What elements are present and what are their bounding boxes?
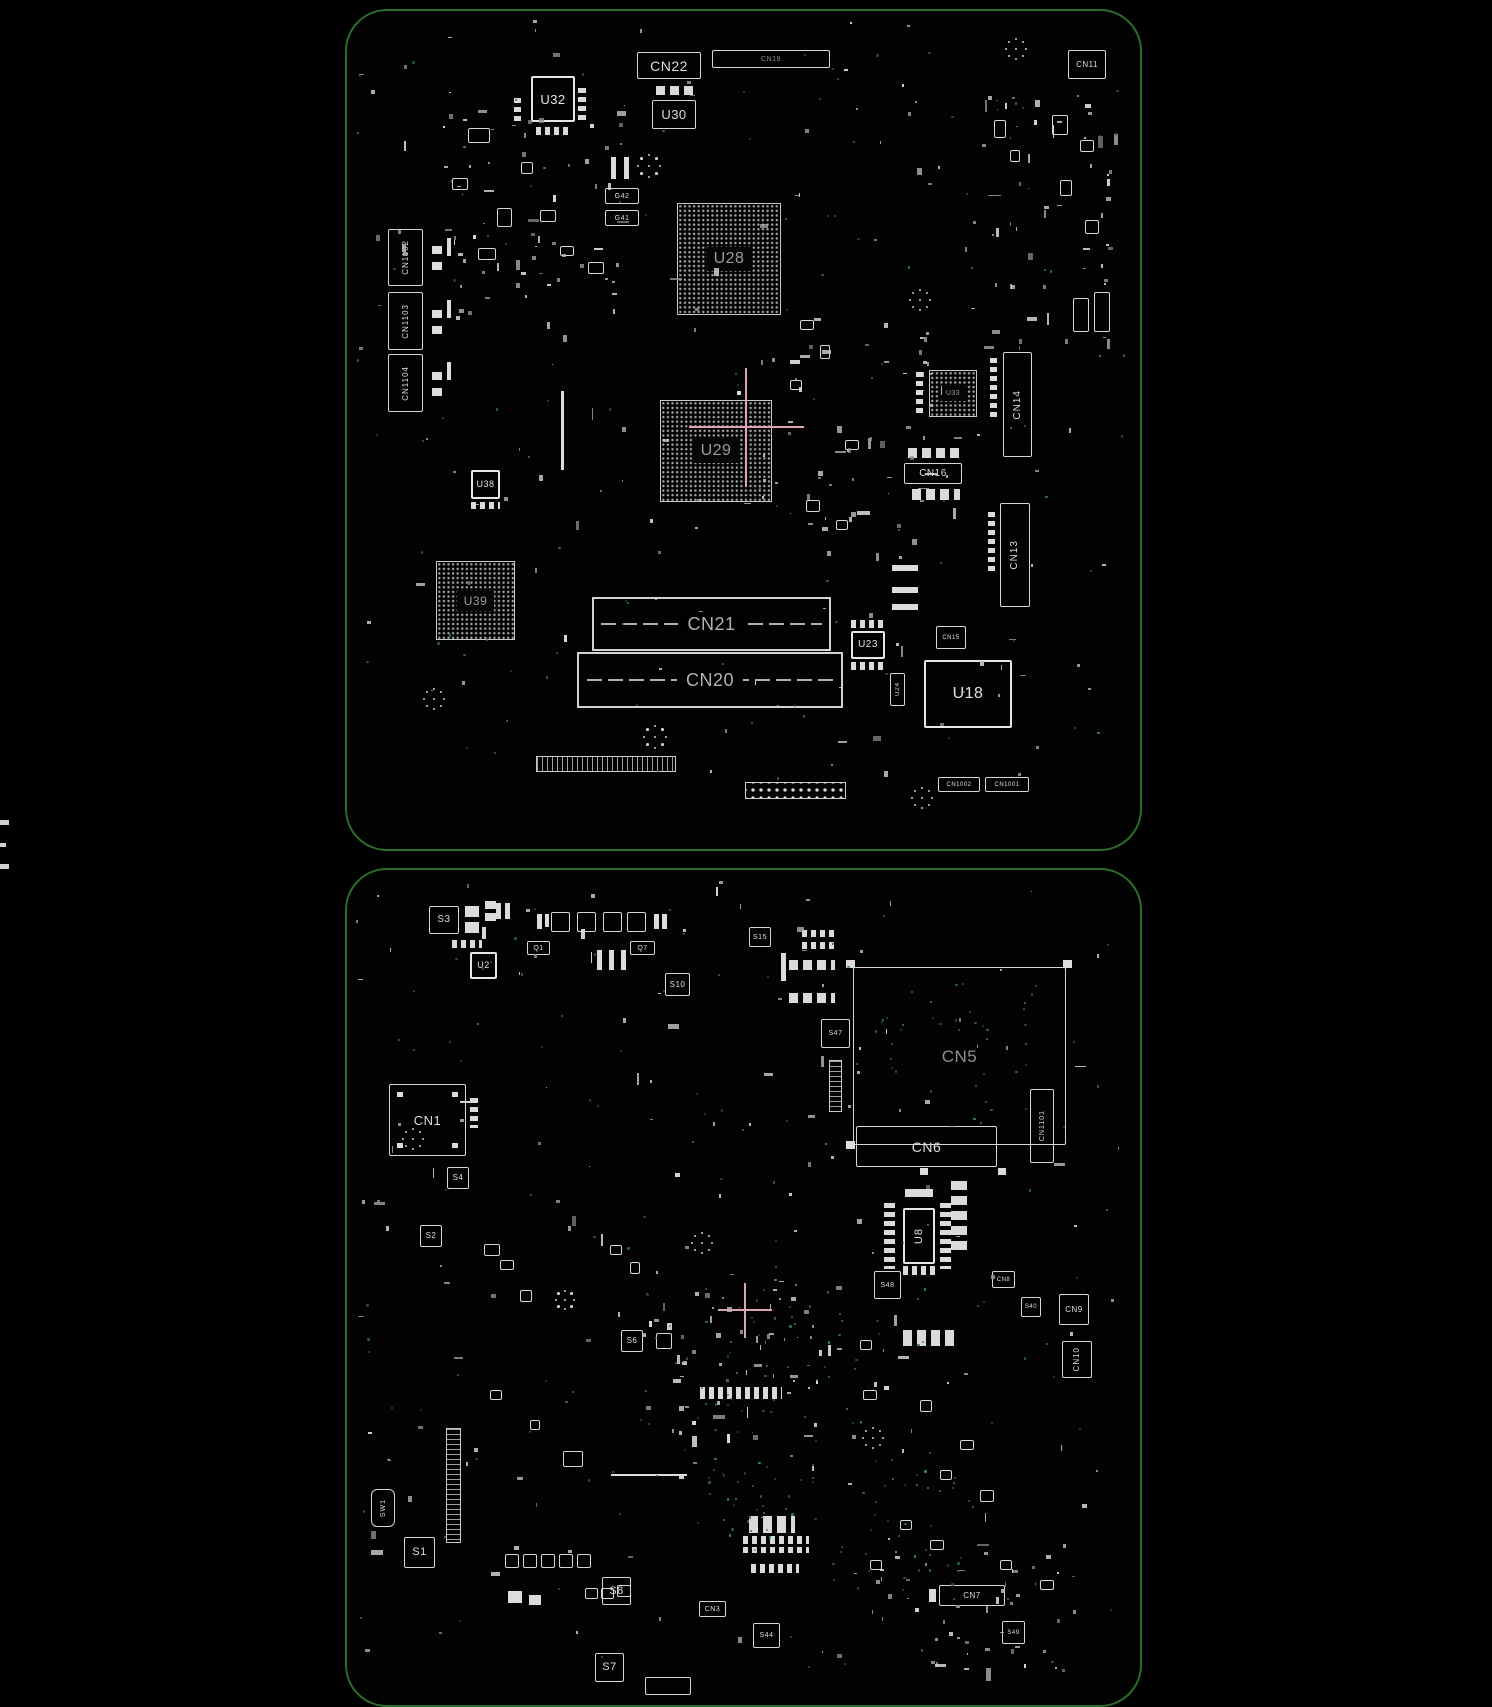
teal-via-dot [619,201,621,203]
smd-fleck [895,1551,897,1552]
component-label: CN8 [997,1277,1011,1283]
box-pad [836,520,848,530]
smd-fleck [628,1556,633,1558]
via-dot [914,804,917,807]
via-dot [402,1138,405,1141]
via-dot [919,299,922,302]
component-label: U33 [939,386,967,401]
smd-fleck [478,110,487,113]
teal-via-dot [420,1409,422,1411]
smd-fleck [668,1024,679,1028]
smd-fleck [516,260,521,270]
smd-fleck [1097,954,1099,959]
smd-fleck [837,426,841,432]
smd-fleck [358,979,363,980]
smd-fleck [887,477,892,479]
component-s3: S3 [429,906,459,934]
smd-fleck [964,1668,969,1670]
teal-via-dot [683,933,685,935]
smd-fleck [804,1435,813,1437]
tick-h-pad [536,756,676,772]
smd-fleck [926,1185,930,1189]
smd-fleck [790,513,791,515]
smd-fleck [836,1286,842,1290]
smd-fleck [1083,248,1091,251]
smd-fleck [456,316,459,320]
smd-fleck [719,1194,722,1199]
component-q7: Q7 [630,941,655,955]
smd-fleck [882,1617,883,1621]
smd-fleck [553,195,556,202]
via-cluster [861,1426,885,1450]
smd-fleck [965,247,967,251]
teal-via-dot [812,1464,814,1466]
smd-fleck [884,771,888,777]
via-dot [919,289,922,292]
smd-fleck [929,404,933,407]
teal-via-dot [704,1113,706,1115]
via-dot [426,705,429,708]
teal-via-dot [924,1470,926,1472]
via-dot [1022,41,1025,44]
smd-fleck [791,1297,796,1301]
smd-fleck [1077,95,1079,97]
smd-fleck [687,81,691,84]
via-cluster [690,1231,714,1255]
component-u39: U39 [436,561,515,640]
component-label: CN1101 [1039,1110,1046,1141]
via-dot [879,1444,882,1447]
smd-fleck [1107,339,1110,349]
smd-fleck [504,497,508,501]
smd-fleck [1020,675,1025,676]
smd-fleck [797,927,804,931]
smd-fleck [1016,227,1017,231]
smd-pad [432,262,442,270]
smd-fleck [462,194,463,196]
smd-fleck [1019,346,1020,350]
teal-via-dot [1025,1108,1027,1110]
teal-via-dot [853,141,855,143]
smd-fleck [553,53,561,57]
smd-fleck [760,1345,761,1350]
smd-fleck [788,421,793,423]
teal-via-dot [442,417,444,419]
smd-fleck [468,311,473,316]
component-cn1102: CN1102 [388,229,423,286]
smd-fleck [512,125,516,126]
smd-fleck [1063,1544,1066,1548]
smd-fleck [818,471,823,476]
smd-fleck [899,1109,900,1113]
smd-fleck [764,1073,773,1076]
teal-via-dot [729,1534,731,1536]
smd-fleck [462,681,465,686]
teal-via-dot [770,433,772,435]
teal-via-dot [747,1520,749,1522]
smd-fleck [894,1315,897,1326]
smd-fleck [699,611,703,612]
smd-fleck [977,434,980,436]
smd-fleck [835,451,845,453]
smd-fleck [772,358,774,362]
smd-pad [537,914,542,929]
smd-pad [998,1168,1006,1175]
smd-fleck [654,1319,658,1322]
teal-via-dot [904,1484,906,1486]
box-pad [1060,180,1072,196]
teal-via-dot [857,1587,859,1589]
smd-fleck [985,1648,990,1651]
smd-fleck [897,524,901,528]
teal-via-dot [762,1410,764,1412]
via-dot [708,1235,711,1238]
smd-fleck [454,240,455,245]
teal-via-dot [908,266,910,268]
smd-fleck [454,236,456,239]
via-dot [865,1430,868,1433]
smd-fleck [716,1333,721,1338]
smd-fleck [488,162,490,164]
teal-via-dot [1051,1661,1053,1663]
smd-fleck [581,929,585,939]
smd-fleck [371,1550,383,1555]
smd-fleck [876,1580,881,1584]
smd-fleck [371,90,375,94]
smd-fleck [642,1334,646,1338]
teal-via-dot [708,1481,710,1483]
smd-fleck [694,328,696,332]
smd-pad [654,914,659,929]
smd-fleck [719,881,723,885]
pins-h-pad [751,1564,799,1573]
teal-via-dot [1063,1126,1065,1128]
pins-v-pad [988,512,995,572]
teal-via-dot [588,1479,590,1481]
smd-fleck [1001,1589,1005,1593]
smd-fleck [986,1668,990,1680]
box-pad [806,500,820,512]
smd-fleck [749,1123,752,1126]
teal-via-dot [729,1352,731,1354]
box-pad [863,1390,877,1400]
teal-via-dot [932,1017,934,1019]
smd-fleck [612,293,617,295]
smd-fleck [965,1641,968,1645]
box-pad [484,1244,500,1256]
teal-via-dot [449,634,451,636]
smd-fleck [844,69,848,71]
teal-via-dot [453,279,455,281]
via-dot [661,728,664,731]
via-dot [711,1242,714,1245]
smd-fleck [923,361,927,364]
component-label: CN13 [1010,540,1020,570]
smd-fleck [901,646,903,656]
smd-pad [624,157,629,179]
box-pad [930,1540,944,1550]
via-dot [564,1308,567,1311]
smd-pad [452,1092,458,1097]
smd-fleck [899,556,902,559]
pins-h-pad [903,1266,935,1275]
via-dot [419,1131,422,1134]
pins-h-pad [789,993,835,1003]
smd-fleck [679,1406,683,1411]
via-cluster [401,1127,425,1151]
smd-fleck [737,391,741,395]
teal-via-dot [715,1403,717,1405]
via-dot [648,165,651,168]
via-dot [412,1148,415,1151]
smd-fleck [818,477,822,480]
teal-via-dot [457,1374,459,1376]
smd-fleck [884,1386,889,1390]
component-cn22: CN22 [637,52,701,79]
smd-fleck [1031,564,1033,567]
smd-fleck [787,1392,791,1394]
component-label: CN1 [414,1114,442,1127]
smd-fleck [1084,137,1086,139]
smd-fleck [491,1294,495,1298]
smd-fleck [482,927,486,940]
component-s48: S48 [874,1271,901,1299]
teal-via-dot [974,1022,976,1024]
teal-via-dot [763,1289,765,1291]
box-pad [1040,1580,1054,1590]
smd-fleck [810,1336,812,1338]
component-label: CN1001 [994,782,1019,788]
smd-fleck [1101,264,1103,268]
smd-pad [920,1168,928,1175]
teal-via-dot [773,1181,775,1183]
smd-fleck [876,553,880,561]
teal-via-dot [929,1554,931,1556]
smd-fleck [1077,664,1081,667]
component-label: CN22 [650,59,688,73]
component-cn1001: CN1001 [985,777,1029,792]
teal-via-dot [930,1090,932,1092]
smd-fleck [459,309,464,313]
via-dot [412,1128,415,1131]
via-dot [640,157,643,160]
smd-fleck [440,1265,441,1267]
smd-fleck [1035,100,1040,107]
component-label: S15 [753,934,767,941]
box-pad [940,1470,952,1480]
smd-fleck [967,1653,968,1655]
smd-fleck [996,1597,998,1604]
via-dot [426,691,429,694]
teal-via-dot [918,1569,920,1571]
teal-via-dot [1121,435,1123,437]
box-pad [500,1260,514,1270]
component-g41: G41 [605,210,639,226]
teal-via-dot [1025,1064,1027,1066]
component-label: S49 [1007,1630,1019,1636]
smd-fleck [1111,1299,1114,1301]
teal-via-dot [767,976,769,978]
smd-fleck [971,308,974,309]
smd-fleck [484,190,494,192]
smd-pad [465,906,479,917]
via-dot [405,1145,408,1148]
smd-fleck [940,723,945,726]
smd-fleck [408,1496,412,1502]
via-dot [665,736,668,739]
smd-fleck [984,346,995,349]
teal-via-dot [951,1126,953,1128]
smd-pad [432,326,442,334]
smd-fleck [884,361,889,362]
component-cn7: CN7 [939,1585,1005,1606]
box-pad [563,1451,583,1467]
box-pad [490,1390,502,1400]
smd-fleck [392,1146,393,1153]
smd-fleck [1032,1566,1035,1569]
smd-fleck [925,1100,931,1104]
pins-h-pad [656,86,694,95]
teal-via-dot [1079,1428,1081,1430]
pins-h-pad [908,448,960,458]
teal-via-dot [684,1449,686,1451]
smd-fleck [847,450,849,452]
via-dot [412,1138,415,1141]
box-pad [588,262,604,274]
teal-via-dot [421,551,423,553]
smd-fleck [431,690,434,691]
smd-fleck [907,1598,909,1599]
component-cn10: CN10 [1062,1341,1092,1378]
smd-fleck [650,519,653,523]
pins-v-pad [578,88,586,124]
component-cn9: CN9 [1059,1294,1089,1325]
smd-fleck [808,1387,811,1389]
via-dot [921,797,924,800]
smd-fleck [977,1544,989,1546]
smd-fleck [1028,154,1030,164]
smd-fleck [1075,1066,1085,1068]
teal-via-dot [706,238,708,240]
smd-fleck [675,1173,680,1177]
component-label: U38 [476,480,494,489]
smd-fleck [374,1202,385,1205]
component-s1: S1 [404,1537,435,1568]
smd-fleck [1104,283,1106,285]
smd-fleck [514,1546,519,1550]
smd-fleck [538,236,540,243]
box-pad [1080,140,1094,152]
smd-fleck [857,1219,862,1224]
via-dot [433,698,436,701]
smd-pad [892,587,918,593]
smd-fleck [491,129,493,130]
pins-h-pad [700,1387,782,1399]
smd-fleck [585,159,589,164]
smd-fleck [746,1370,748,1374]
smd-fleck [525,295,528,298]
smd-fleck [880,1569,884,1571]
component-s10: S10 [665,973,690,996]
smd-fleck [387,1459,390,1460]
teal-via-dot [839,1313,841,1315]
smd-fleck [714,268,719,276]
smd-fleck [927,362,928,366]
teal-via-dot [917,1344,919,1346]
smd-fleck [1000,969,1002,971]
via-dot [646,743,649,746]
teal-via-dot [368,1351,370,1353]
smd-fleck [747,1407,748,1418]
teal-via-dot [953,1598,955,1600]
smd-fleck [1005,103,1007,110]
smd-fleck [825,1143,828,1145]
smd-fleck [1043,285,1046,289]
teal-via-dot [957,1562,959,1564]
smd-fleck [935,1638,938,1641]
teal-via-dot [515,99,517,101]
smd-fleck [956,1236,960,1237]
smd-fleck [359,347,363,350]
smd-fleck [552,364,554,365]
smd-fleck [947,1382,948,1384]
component-cn1101: CN1101 [1030,1089,1054,1163]
pins-h-pad [452,940,482,948]
box-pad [860,1340,872,1350]
smd-fleck [906,1579,910,1581]
component-cn11: CN11 [1068,50,1106,79]
teal-via-dot [1015,1071,1017,1073]
via-dot [440,705,443,708]
component-label: CN15 [942,635,959,641]
via-dot [914,790,917,793]
via-dot [646,728,649,731]
smd-fleck [468,581,470,584]
smd-fleck [774,1279,777,1281]
smd-fleck [449,92,451,93]
via-dot [648,176,651,179]
smd-fleck [773,1374,774,1378]
teal-via-dot [760,1495,762,1497]
smd-pad [496,903,501,919]
smd-fleck [848,1483,852,1485]
smd-fleck [917,168,922,175]
smd-fleck [1109,170,1112,174]
teal-via-dot [744,1472,746,1474]
smd-fleck [992,330,1000,333]
via-dot [872,1437,875,1440]
teal-via-dot [1097,1085,1099,1087]
pins-h-pad [802,930,838,937]
via-dot [637,165,640,168]
smd-fleck [637,1073,639,1084]
smd-pad [689,426,804,428]
smd-fleck [521,272,525,274]
pins-h-pad [743,1536,809,1544]
box-pad [577,1554,591,1568]
smd-fleck [828,1345,831,1356]
via-dot [872,1447,875,1450]
smd-fleck [923,372,924,377]
smd-fleck [719,1363,721,1366]
smd-fleck [605,278,608,279]
smd-fleck [1085,104,1091,107]
smd-fleck [485,297,489,299]
smd-fleck [756,1336,758,1343]
teal-via-dot [735,373,737,375]
tick-v-pad [829,1060,842,1112]
smd-fleck [522,152,526,156]
